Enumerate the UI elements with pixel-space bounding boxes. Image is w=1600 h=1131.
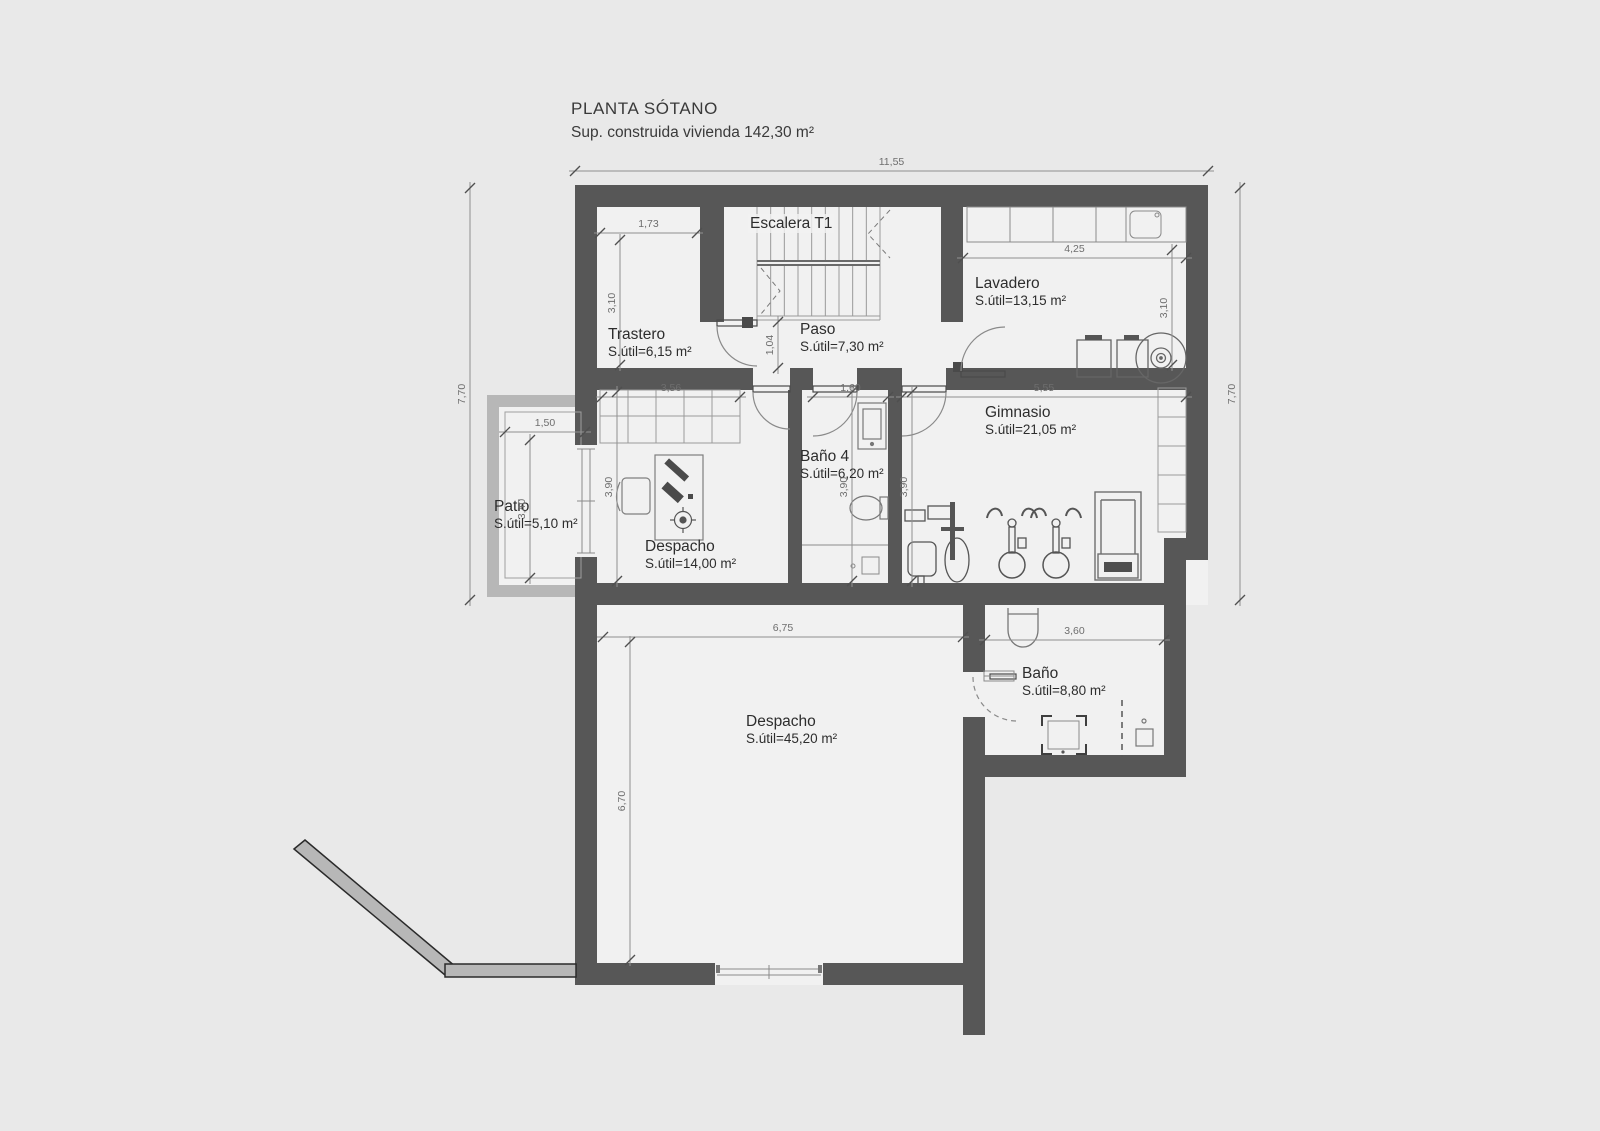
dimension-label-despacho_inf_height: 6,70 — [616, 791, 628, 811]
dimension-label-right_height: 7,70 — [1226, 384, 1238, 404]
dimension-label-trastero_width: 1,73 — [638, 218, 658, 230]
toilet-icon-bano4 — [850, 496, 888, 520]
lavadero-counter — [967, 207, 1186, 242]
ramp-wall — [294, 840, 576, 977]
door-lavadero — [953, 327, 1005, 377]
gym-shelf — [1158, 388, 1186, 532]
bathtub-icon — [1042, 716, 1086, 754]
floor-plan: PLANTA SÓTANO Sup. construida vivienda 1… — [0, 0, 1600, 1131]
room-label-paso: Paso S.útil=7,30 m² — [800, 320, 884, 356]
room-label-trastero: Trastero S.útil=6,15 m² — [608, 325, 692, 361]
dimension-label-gimnasio_width: 5,55 — [1034, 382, 1054, 394]
dimension-label-lavadero_height: 3,10 — [1158, 297, 1170, 317]
room-label-lavadero: Lavadero S.útil=13,15 m² — [975, 274, 1066, 310]
office-chair-icon — [617, 478, 651, 514]
room-label-despacho-inf: Despacho S.útil=45,20 m² — [746, 712, 837, 748]
washer-icon — [1077, 335, 1111, 377]
weight-machine-icon — [905, 502, 969, 586]
dimension-label-bano_width: 3,60 — [1064, 625, 1084, 637]
dimension-label-top_width: 11,55 — [879, 156, 905, 168]
dimension-label-patio_width: 1,50 — [535, 417, 555, 429]
dimension-label-despacho_sup_height: 3,90 — [603, 476, 615, 496]
patio-window — [575, 445, 597, 557]
plan-drawing-overlay — [0, 0, 1600, 1131]
room-label-despacho-sup: Despacho S.útil=14,00 m² — [645, 537, 736, 573]
treadmill-icon — [1095, 492, 1141, 580]
mouse-icon — [688, 494, 693, 499]
dimension-label-paso_height: 1,04 — [764, 335, 776, 355]
door-despacho-sup — [753, 386, 790, 429]
wardrobe-grid — [600, 390, 740, 443]
dimension-label-trastero_height: 3,10 — [606, 292, 618, 312]
water-heater-icon — [1136, 333, 1186, 383]
dimension-label-gimnasio_height: 3,90 — [898, 476, 910, 496]
exercise-bike-icon — [1031, 509, 1081, 578]
sink-icon-bano — [1136, 719, 1153, 746]
patio-inner-line — [505, 412, 581, 578]
dimension-label-despacho_inf_width: 6,75 — [773, 622, 793, 634]
room-label-bano: Baño S.útil=8,80 m² — [1022, 664, 1106, 700]
room-label-patio: Patio S.útil=5,10 m² — [494, 497, 578, 533]
room-label-escalera: Escalera T1 — [748, 214, 834, 233]
bottom-window — [715, 963, 823, 985]
room-label-gimnasio: Gimnasio S.útil=21,05 m² — [985, 403, 1076, 439]
dryer-icon — [1117, 335, 1148, 377]
bano4-cabinet — [858, 403, 886, 449]
toilet-icon-bano — [1008, 608, 1038, 647]
dimension-label-bano4_width: 1,60 — [840, 382, 860, 394]
shower-bano4 — [802, 545, 888, 574]
dimension-label-bano4_height: 3,90 — [838, 476, 850, 496]
dimension-label-lavadero_width: 4,25 — [1064, 243, 1084, 255]
dimension-label-wardrobe_width: 3,56 — [661, 382, 681, 394]
exercise-bike-icon — [987, 509, 1037, 578]
dimension-label-patio_height: 3,40 — [516, 499, 528, 519]
sink-icon — [1130, 211, 1161, 238]
dimension-label-left_height: 7,70 — [456, 384, 468, 404]
door-gimnasio — [902, 386, 946, 436]
door-trastero — [717, 317, 757, 366]
